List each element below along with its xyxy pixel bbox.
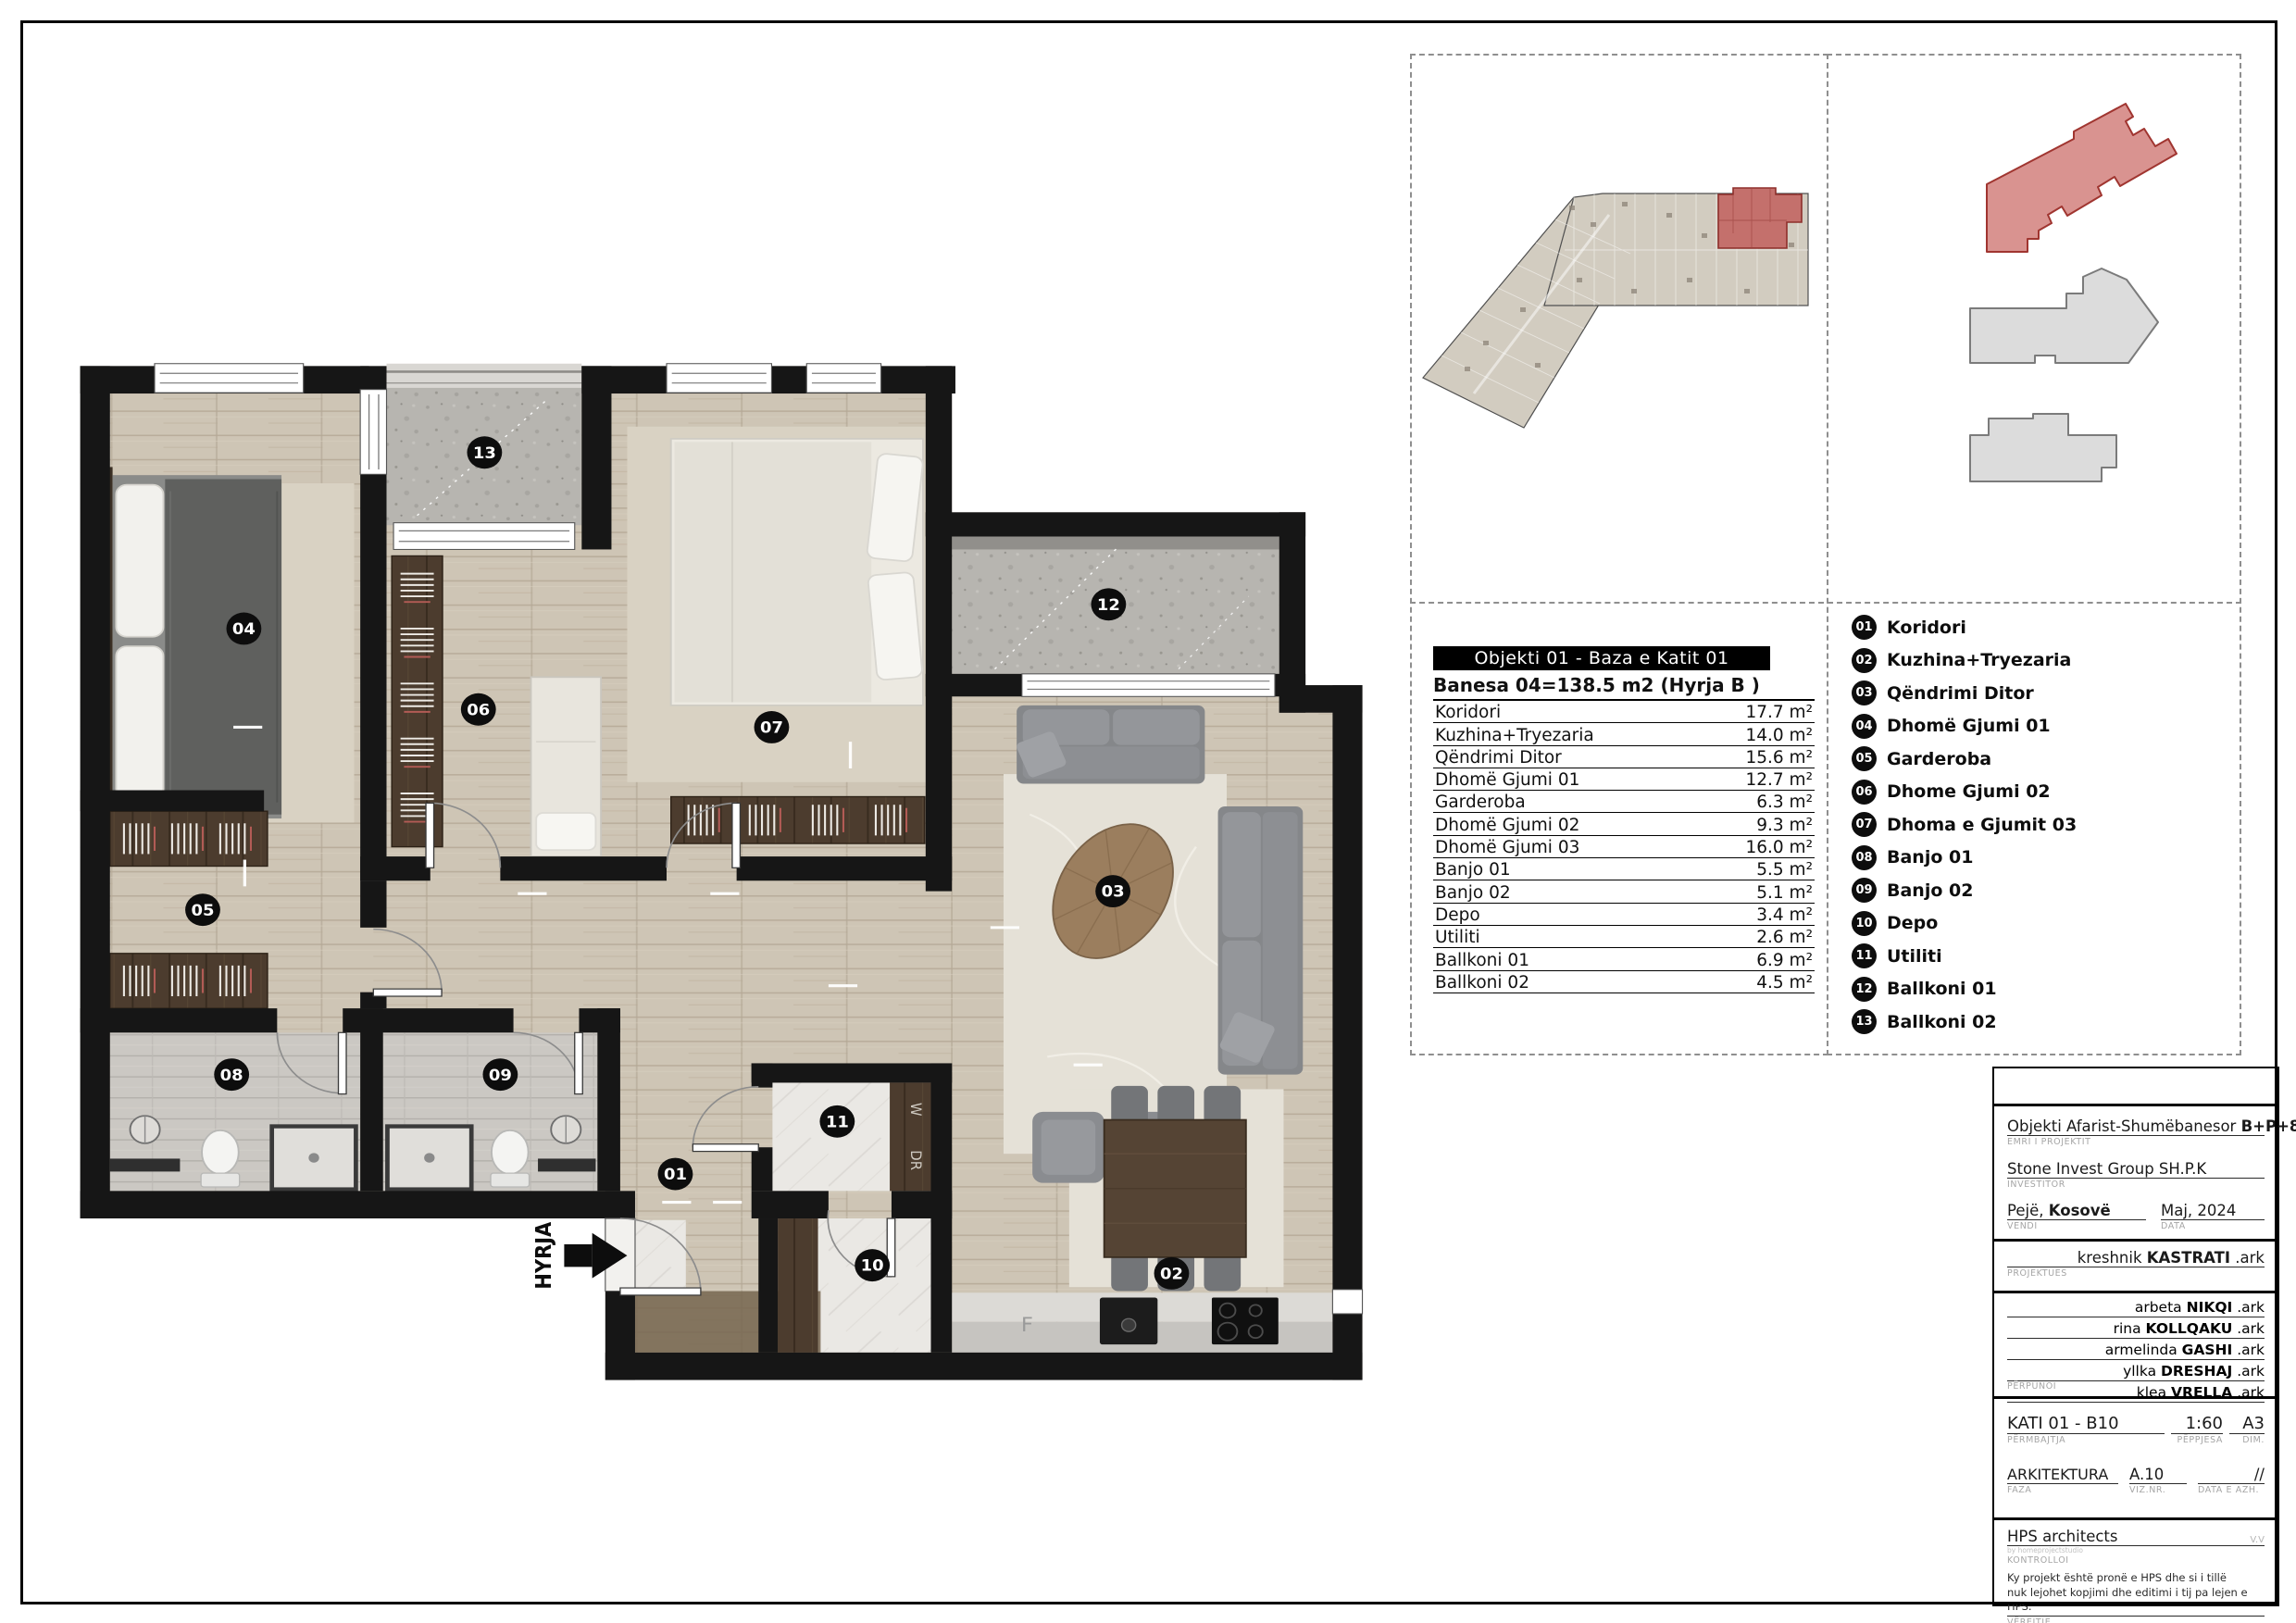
checker: HPS architects	[2007, 1528, 2117, 1545]
checker-initials: V.V	[2250, 1535, 2265, 1545]
update-label: DATA E AZH.	[2198, 1485, 2265, 1495]
designer-label: PROJEKTUES	[2007, 1268, 2265, 1279]
room-area: 14.0 m²	[1745, 726, 1815, 745]
room-legend: 01Koridori02Kuzhina+Tryezaria03Qëndrimi …	[1852, 611, 2231, 1039]
date-label: DATA	[2161, 1221, 2265, 1231]
project-label: EMRI I PROJEKTIT	[2007, 1137, 2265, 1147]
legend-badge: 02	[1852, 648, 1877, 673]
area-table: Objekti 01 - Baza e Katit 01 Banesa 04=1…	[1433, 646, 1815, 993]
legend-item: 09Banjo 02	[1852, 874, 2231, 907]
legend-label: Garderoba	[1887, 749, 1991, 769]
title-block-staff: arbeta NIKQI .arkrina KOLLQAKU .arkarmel…	[1994, 1293, 2277, 1399]
staff-member: armelinda GASHI .ark	[2007, 1342, 2265, 1360]
room-name: Banjo 01	[1433, 860, 1511, 880]
staff-member: arbeta NIKQI .ark	[2007, 1299, 2265, 1317]
legend-label: Qëndrimi Ditor	[1887, 683, 2034, 704]
area-table-row: Dhomë Gjumi 0112.7 m²	[1433, 768, 1815, 791]
area-table-row: Dhomë Gjumi 0316.0 m²	[1433, 836, 1815, 858]
key-plan-building	[1423, 188, 1808, 428]
date: Maj, 2024	[2161, 1202, 2236, 1219]
legend-item: 06Dhome Gjumi 02	[1852, 776, 2231, 809]
paper-size: A3	[2242, 1414, 2265, 1433]
legend-item: 03Qëndrimi Ditor	[1852, 677, 2231, 710]
note-line1: Ky projekt është pronë e HPS dhe si i ti…	[2007, 1571, 2265, 1586]
room-name: Ballkoni 02	[1433, 973, 1529, 993]
checker-sub: by homeprojectstudio	[2007, 1546, 2265, 1554]
legend-badge: 11	[1852, 943, 1877, 968]
area-table-subtitle: Banesa 04=138.5 m2 (Hyrja B )	[1433, 670, 1815, 701]
legend-badge: 04	[1852, 714, 1877, 739]
sheet-content: KATI 01 - B10	[2007, 1414, 2119, 1433]
sheet-number-label: VIZ.NR.	[2129, 1485, 2187, 1495]
room-area: 9.3 m²	[1756, 816, 1815, 835]
legend-badge: 08	[1852, 845, 1877, 870]
content-label: PËRMBAJTJA	[2007, 1435, 2165, 1445]
room-name: Dhomë Gjumi 03	[1433, 838, 1579, 857]
legend-label: Dhome Gjumi 02	[1887, 781, 2051, 802]
legend-item: 02Kuzhina+Tryezaria	[1852, 644, 2231, 678]
area-table-row: Dhomë Gjumi 029.3 m²	[1433, 813, 1815, 835]
legend-badge: 13	[1852, 1009, 1877, 1034]
room-name: Qëndrimi Ditor	[1433, 748, 1562, 768]
room-area: 15.6 m²	[1745, 748, 1815, 768]
size-label: DIM.	[2229, 1435, 2265, 1445]
room-name: Koridori	[1433, 703, 1501, 722]
room-name: Kuzhina+Tryezaria	[1433, 726, 1594, 745]
legend-badge: 12	[1852, 977, 1877, 1002]
legend-badge: 06	[1852, 780, 1877, 805]
project-name: Objekti Afarist-Shumëbanesor B+P+8K	[2007, 1117, 2296, 1135]
legend-badge: 05	[1852, 746, 1877, 771]
legend-label: Banjo 02	[1887, 880, 1973, 901]
legend-badge: 09	[1852, 878, 1877, 903]
legend-badge: 10	[1852, 911, 1877, 936]
title-block: Objekti Afarist-Shumëbanesor B+P+8K EMRI…	[1992, 1067, 2279, 1606]
title-block-designer: kreshnik KASTRATI .ark PROJEKTUES	[1994, 1242, 2277, 1293]
title-block-project: Objekti Afarist-Shumëbanesor B+P+8K EMRI…	[1994, 1106, 2277, 1242]
designer: kreshnik KASTRATI .ark	[2078, 1249, 2265, 1267]
area-table-row: Banjo 025.1 m²	[1433, 880, 1815, 903]
legend-label: Dhomë Gjumi 01	[1887, 716, 2051, 736]
area-table-row: Kuzhina+Tryezaria14.0 m²	[1433, 723, 1815, 745]
legend-item: 07Dhoma e Gjumit 03	[1852, 808, 2231, 842]
place: Pejë, Kosovë	[2007, 1202, 2111, 1219]
legend-item: 13Ballkoni 02	[1852, 1005, 2231, 1039]
room-name: Depo	[1433, 905, 1480, 925]
room-area: 2.6 m²	[1756, 928, 1815, 947]
title-block-content: KATI 01 - B10 PËRMBAJTJA 1:60 PËPPJESA A…	[1994, 1399, 2277, 1520]
phase-label: FAZA	[2007, 1485, 2118, 1495]
legend-label: Koridori	[1887, 618, 1966, 638]
room-name: Ballkoni 01	[1433, 951, 1529, 970]
room-area: 12.7 m²	[1745, 770, 1815, 790]
room-area: 5.1 m²	[1756, 883, 1815, 903]
area-table-title: Objekti 01 - Baza e Katit 01	[1433, 646, 1770, 670]
area-table-row: Ballkoni 024.5 m²	[1433, 971, 1815, 993]
area-table-row: Depo3.4 m²	[1433, 904, 1815, 926]
legend-badge: 01	[1852, 615, 1877, 640]
legend-badge: 07	[1852, 812, 1877, 837]
scale: 1:60	[2186, 1414, 2223, 1433]
legend-label: Dhoma e Gjumit 03	[1887, 815, 2077, 835]
scale-label: PËPPJESA	[2171, 1435, 2223, 1445]
room-area: 6.3 m²	[1756, 793, 1815, 812]
room-area: 3.4 m²	[1756, 905, 1815, 925]
update-date: //	[2254, 1466, 2265, 1483]
staff-label: PËRPUNOI	[2007, 1381, 2056, 1392]
drawing-sheet: F	[0, 0, 2296, 1623]
area-table-row: Utiliti2.6 m²	[1433, 926, 1815, 948]
legend-label: Ballkoni 01	[1887, 979, 1997, 999]
title-block-check: HPS architects V.V by homeprojectstudio …	[1994, 1520, 2277, 1603]
room-area: 6.9 m²	[1756, 951, 1815, 970]
legend-item: 01Koridori	[1852, 611, 2231, 644]
investor-label: INVESTITOR	[2007, 1180, 2265, 1190]
room-area: 5.5 m²	[1756, 860, 1815, 880]
area-table-row: Koridori17.7 m²	[1433, 701, 1815, 723]
legend-label: Utiliti	[1887, 946, 1942, 967]
room-area: 16.0 m²	[1745, 838, 1815, 857]
legend-badge: 03	[1852, 680, 1877, 705]
legend-item: 10Depo	[1852, 907, 2231, 941]
legend-label: Depo	[1887, 913, 1938, 933]
area-table-row: Ballkoni 016.9 m²	[1433, 948, 1815, 970]
room-name: Dhomë Gjumi 01	[1433, 770, 1579, 790]
place-label: VENDI	[2007, 1221, 2146, 1231]
area-table-rows: Koridori17.7 m²Kuzhina+Tryezaria14.0 m²Q…	[1433, 701, 1815, 993]
legend-item: 04Dhomë Gjumi 01	[1852, 710, 2231, 743]
key-outline-shapes	[1970, 104, 2177, 481]
staff-member: rina KOLLQAKU .ark	[2007, 1320, 2265, 1339]
area-table-row: Banjo 015.5 m²	[1433, 858, 1815, 880]
legend-label: Ballkoni 02	[1887, 1012, 1997, 1032]
note-label: VËREJTJE	[2007, 1617, 2265, 1623]
room-area: 17.7 m²	[1745, 703, 1815, 722]
legend-label: Banjo 01	[1887, 847, 1973, 868]
room-name: Dhomë Gjumi 02	[1433, 816, 1579, 835]
outline-building-2	[1970, 268, 2158, 363]
legend-item: 11Utiliti	[1852, 940, 2231, 973]
legend-item: 05Garderoba	[1852, 743, 2231, 776]
room-name: Utiliti	[1433, 928, 1480, 947]
room-name: Garderoba	[1433, 793, 1526, 812]
title-block-empty	[1994, 1068, 2277, 1106]
room-name: Banjo 02	[1433, 883, 1511, 903]
legend-item: 08Banjo 01	[1852, 842, 2231, 875]
outline-building-3	[1970, 414, 2116, 481]
room-area: 4.5 m²	[1756, 973, 1815, 993]
phase: ARKITEKTURA	[2007, 1466, 2108, 1483]
staff-member: yllka DRESHAJ .ark	[2007, 1363, 2265, 1381]
investor: Stone Invest Group SH.P.K	[2007, 1160, 2206, 1178]
sheet-number: A.10	[2129, 1466, 2164, 1483]
outline-highlighted-building	[1987, 104, 2177, 252]
checker-label: KONTROLLOI	[2007, 1555, 2265, 1566]
legend-item: 12Ballkoni 01	[1852, 973, 2231, 1006]
note-line2: nuk lejohet kopjimi dhe editimi i tij pa…	[2007, 1586, 2265, 1615]
area-table-row: Garderoba6.3 m²	[1433, 791, 1815, 813]
legend-label: Kuzhina+Tryezaria	[1887, 650, 2071, 670]
area-table-row: Qëndrimi Ditor15.6 m²	[1433, 746, 1815, 768]
